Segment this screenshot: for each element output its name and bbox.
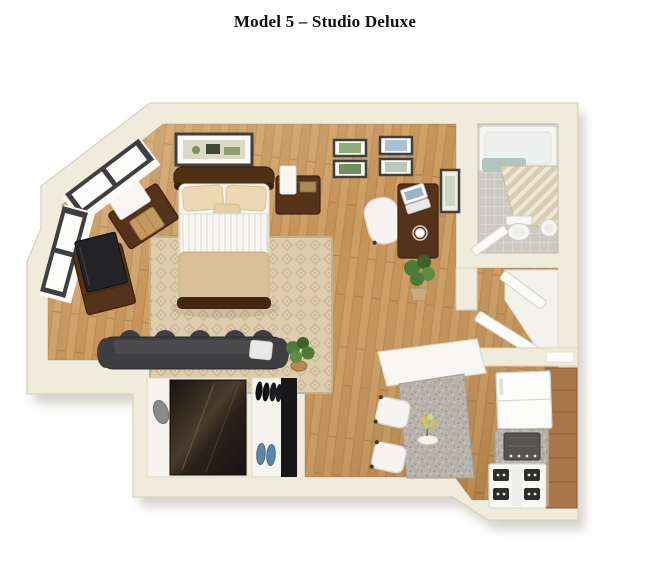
sofa-throw [249, 340, 273, 360]
coffee-cup-inner [416, 229, 425, 238]
lamp [280, 166, 296, 194]
tan-blanket [179, 252, 269, 300]
wall-stub [456, 268, 477, 310]
sofa-arm [97, 338, 115, 368]
cooktop-knob [510, 455, 513, 458]
page: Model 5 – Studio Deluxe [0, 0, 650, 561]
stool [370, 441, 407, 474]
sofa [97, 330, 289, 369]
range [489, 464, 546, 508]
shoe-shelf [281, 378, 297, 477]
striped-duvet [180, 214, 268, 254]
toilet-lid [513, 227, 526, 237]
bathroom-wall-frame [441, 170, 459, 212]
cooktop-knob [534, 455, 537, 458]
range-center-band [512, 466, 522, 506]
kitchen [489, 368, 577, 508]
books [300, 182, 316, 192]
cooktop-knob [526, 455, 529, 458]
burner [493, 469, 509, 481]
floor-plan [0, 0, 650, 561]
cooktop-knob [518, 455, 521, 458]
wall-art-large [176, 134, 252, 165]
bathroom [471, 124, 558, 256]
bed [170, 167, 280, 318]
sink-basin [544, 223, 554, 233]
island-granite [399, 374, 474, 478]
stool [374, 396, 411, 429]
walk-in-closet [147, 378, 247, 477]
footboard [177, 297, 271, 309]
sofa-arm [271, 338, 289, 368]
burner [524, 488, 540, 500]
burner [493, 488, 509, 500]
shoe-closet [252, 378, 297, 477]
fridge-handle [499, 379, 503, 395]
kitchen-shelf [546, 352, 574, 362]
burner [524, 469, 540, 481]
